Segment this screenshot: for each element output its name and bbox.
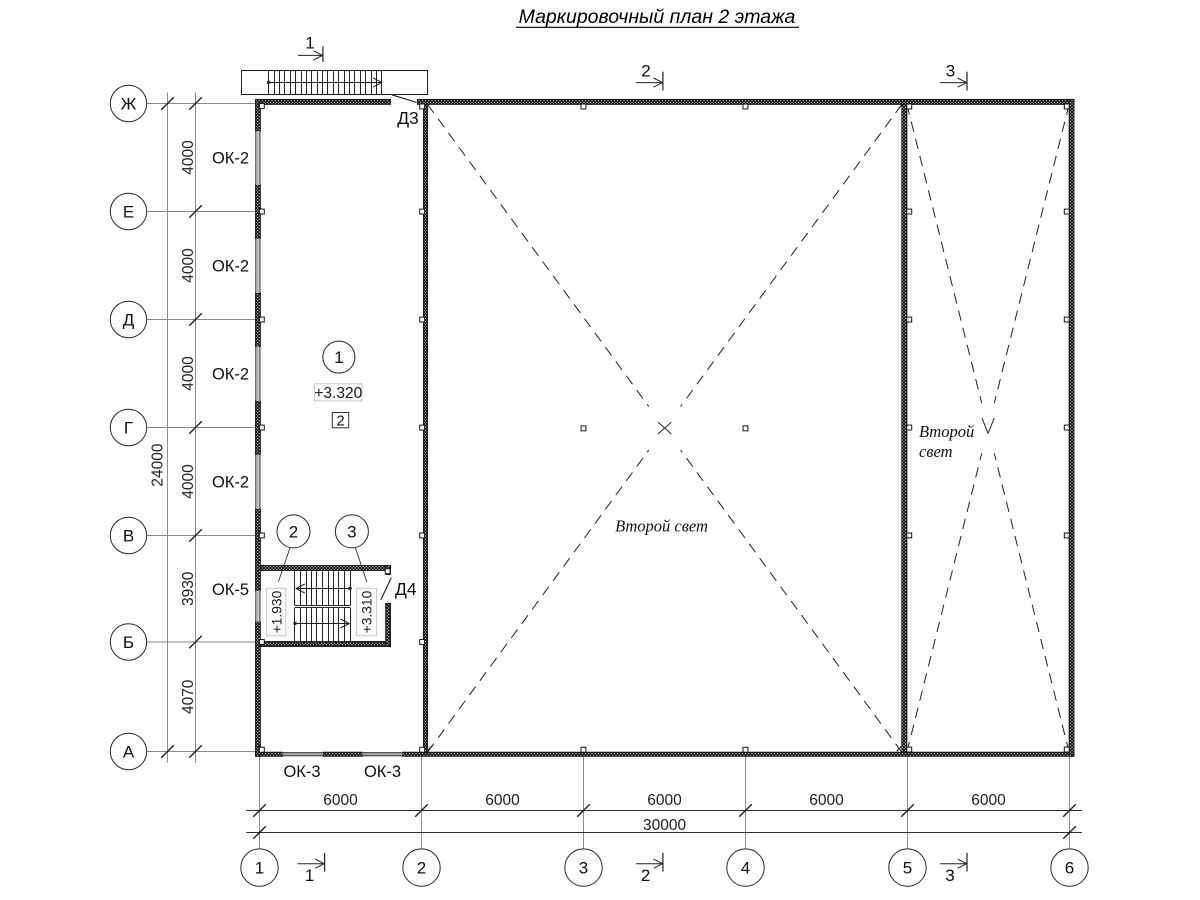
svg-text:1: 1: [255, 859, 264, 878]
svg-text:3: 3: [579, 859, 588, 878]
svg-text:6000: 6000: [809, 792, 844, 809]
svg-text:30000: 30000: [643, 817, 686, 834]
svg-text:Второй свет: Второй свет: [615, 516, 708, 535]
svg-text:2: 2: [417, 859, 426, 878]
svg-text:ОК-3: ОК-3: [364, 763, 401, 781]
svg-text:2: 2: [289, 523, 298, 542]
svg-text:Маркировочный план 2 этажа: Маркировочный план 2 этажа: [519, 6, 796, 28]
svg-text:1: 1: [305, 34, 314, 53]
svg-text:Г: Г: [124, 419, 133, 438]
svg-text:+3.310: +3.310: [360, 590, 375, 633]
svg-text:ОК-5: ОК-5: [212, 581, 249, 599]
svg-text:ОК-2: ОК-2: [212, 473, 249, 491]
svg-text:6: 6: [1065, 859, 1074, 878]
svg-text:Д3: Д3: [397, 108, 419, 128]
svg-text:ОК-2: ОК-2: [212, 257, 249, 275]
svg-text:4: 4: [741, 859, 750, 878]
svg-text:4070: 4070: [180, 679, 197, 714]
svg-text:ОК-2: ОК-2: [212, 149, 249, 167]
svg-text:Ж: Ж: [121, 95, 137, 114]
svg-text:5: 5: [903, 859, 912, 878]
svg-text:2: 2: [336, 413, 344, 430]
svg-text:6000: 6000: [971, 792, 1006, 809]
svg-text:6000: 6000: [485, 792, 520, 809]
svg-text:В: В: [123, 527, 134, 546]
svg-text:Д4: Д4: [395, 579, 417, 599]
svg-text:3: 3: [946, 62, 955, 81]
svg-text:4000: 4000: [180, 140, 197, 175]
svg-text:24000: 24000: [150, 443, 167, 486]
svg-text:Б: Б: [123, 633, 134, 652]
svg-text:свет: свет: [919, 442, 953, 461]
svg-text:3: 3: [347, 523, 356, 542]
svg-text:4000: 4000: [180, 356, 197, 391]
svg-text:+1.930: +1.930: [269, 590, 284, 633]
svg-text:1: 1: [305, 866, 314, 885]
svg-text:Е: Е: [123, 203, 134, 222]
svg-text:Д: Д: [123, 311, 135, 330]
svg-text:4000: 4000: [180, 248, 197, 283]
svg-text:А: А: [123, 743, 135, 762]
svg-text:1: 1: [334, 348, 343, 367]
svg-text:ОК-3: ОК-3: [283, 763, 320, 781]
svg-text:3930: 3930: [180, 571, 197, 606]
svg-text:6000: 6000: [647, 792, 682, 809]
svg-text:2: 2: [641, 866, 650, 885]
svg-text:6000: 6000: [323, 792, 358, 809]
svg-text:4000: 4000: [180, 464, 197, 499]
svg-text:3: 3: [945, 866, 954, 885]
svg-text:2: 2: [641, 62, 650, 81]
svg-text:+3.320: +3.320: [314, 385, 362, 402]
svg-text:ОК-2: ОК-2: [212, 365, 249, 383]
svg-text:Второй: Второй: [919, 422, 975, 441]
